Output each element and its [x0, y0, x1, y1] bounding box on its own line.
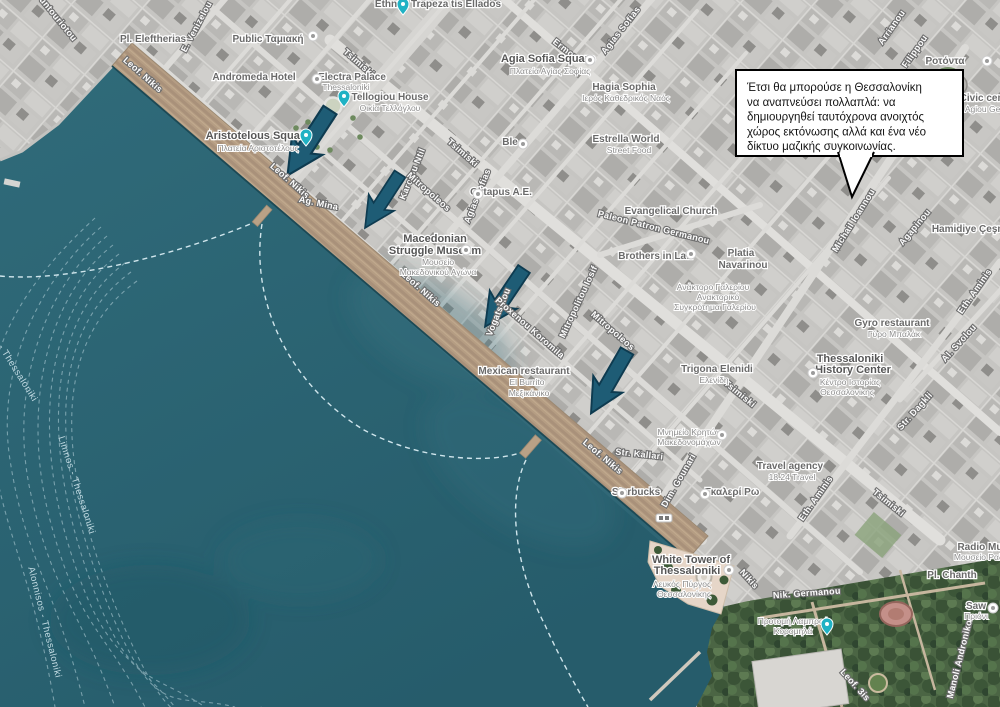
poi-sublabel: Μουσείο Ραδιοφώνου [954, 552, 1000, 562]
poi-dot-icon[interactable] [617, 488, 627, 498]
poi-sublabel: Μακεδονικού Αγώνα [400, 267, 477, 277]
poi-label: Trigona Elenidi [681, 364, 753, 375]
poi-sublabel: Κέντρο Ιστορίας [820, 377, 880, 387]
poi-sublabel: Προτομή Λαμπρού [758, 616, 829, 626]
poi-label: Hagia Sophia [592, 82, 656, 93]
poi-label: Evangelical Church [625, 206, 718, 217]
map-canvas[interactable]: KountouriotouE. VenizelouLeof. NikisLeof… [0, 0, 1000, 707]
poi-sublabel: Ανακτορικό [697, 292, 740, 302]
poi-label: Travel agency [757, 461, 824, 472]
poi-label: Pl. Chanth [927, 570, 976, 581]
poi-sublabel: Γύρο Μπαλάκ [868, 329, 921, 339]
poi-label: Platia [728, 248, 755, 259]
poi-label: Navarinou [719, 260, 768, 271]
bubble-line: δημιουργηθεί ταυτόχρονα ανοιχτός [747, 112, 924, 124]
poi-label: Pl. Eleftherias [120, 34, 187, 45]
poi-sublabel: Κορομηλά [774, 626, 813, 636]
poi-dot-icon[interactable] [518, 139, 528, 149]
poi-sublabel: Ελενίδη [699, 375, 729, 385]
poi-sublabel: Θεσσαλονίκης [657, 589, 711, 599]
poi-label: Gyro restaurant [854, 318, 930, 329]
poi-title: History Center [815, 364, 892, 376]
bubble-line: χώρος εκτόνωσης αλλά και ένα νέο [747, 126, 926, 138]
poi-sublabel: Ανάκτορο Γαλερίου [677, 282, 750, 292]
poi-dot-icon[interactable] [308, 31, 318, 41]
poi-label: Mexican restaurant [478, 366, 570, 377]
poi-title: Thessaloniki [654, 565, 721, 577]
poi-sublabel: Πλατεία Αριστοτέλους [217, 143, 298, 153]
poi-sublabel: Ιερός Καθεδρικός Ναός [582, 93, 670, 103]
poi-label: Ροτόντα [926, 56, 966, 67]
poi-sublabel: 18.24 Travel [769, 472, 816, 482]
poi-sublabel: Πλατεία Αγίας Σοφίας [510, 66, 590, 76]
poi-label: Ble [502, 137, 518, 148]
poi-sublabel: Θεσσαλονίκης [820, 387, 874, 397]
poi-dot-icon[interactable] [724, 565, 734, 575]
poi-label: Tellogiou House [351, 92, 428, 103]
poi-dot-icon[interactable] [461, 245, 471, 255]
poi-dot-icon[interactable] [808, 368, 818, 378]
poi-dot-icon[interactable] [585, 55, 595, 65]
poi-title: Agia Sofia Square [501, 53, 595, 65]
bubble-line: Έτσι θα μπορούσε η Θεσσαλονίκη [746, 82, 922, 94]
poi-dot-icon[interactable] [700, 489, 710, 499]
poi-sublabel: Μεξικάνικο [509, 388, 550, 398]
poi-sublabel: Οικία Τελλόγλου [360, 103, 421, 113]
poi-label: Civic center [960, 93, 1000, 104]
poi-dot-icon[interactable] [717, 430, 727, 440]
poi-label: Hamidiye Çeşmesi [932, 224, 1000, 235]
poi-dot-icon[interactable] [982, 56, 992, 66]
poi-dot-icon[interactable] [312, 74, 322, 84]
poi-sublabel: Μακεδονομάχων [657, 437, 720, 447]
poi-sublabel: Συγκρότημα Γαλερίου [674, 302, 756, 312]
poi-label: Andromeda Hotel [212, 72, 296, 83]
transit-stop-icon[interactable] [656, 514, 672, 522]
poi-label: Γκαλερί Ρω [705, 487, 760, 498]
poi-sublabel: El Burrito [510, 377, 545, 387]
poi-title: Macedonian [403, 233, 467, 245]
bubble-line: δίκτυο μαζικής συγκοινωνίας. [747, 141, 896, 153]
poi-label: Public Ταμιακή [232, 34, 303, 45]
bubble-line: να αναπνεύσει πολλαπλά: να [747, 97, 896, 109]
poi-dot-icon[interactable] [988, 603, 998, 613]
poi-sublabel: Λευκός Πύργος [653, 579, 711, 589]
poi-sublabel: Πριόνι [964, 611, 988, 621]
poi-sublabel: Μνημείο Κρητών [657, 427, 720, 437]
map-screenshot: KountouriotouE. VenizelouLeof. NikisLeof… [0, 0, 1000, 707]
poi-label: Estrella World [592, 134, 659, 145]
poi-sublabel: Μουσείο [422, 257, 454, 267]
poi-label: Brothers in Law [618, 251, 694, 262]
poi-sublabel: Street Food [607, 145, 652, 155]
poi-label: Ethniki Trapeza tis Ellados [375, 0, 502, 10]
poi-dot-icon[interactable] [686, 249, 696, 259]
poi-title: Aristotelous Square [206, 130, 311, 142]
poi-dot-icon[interactable] [473, 189, 483, 199]
